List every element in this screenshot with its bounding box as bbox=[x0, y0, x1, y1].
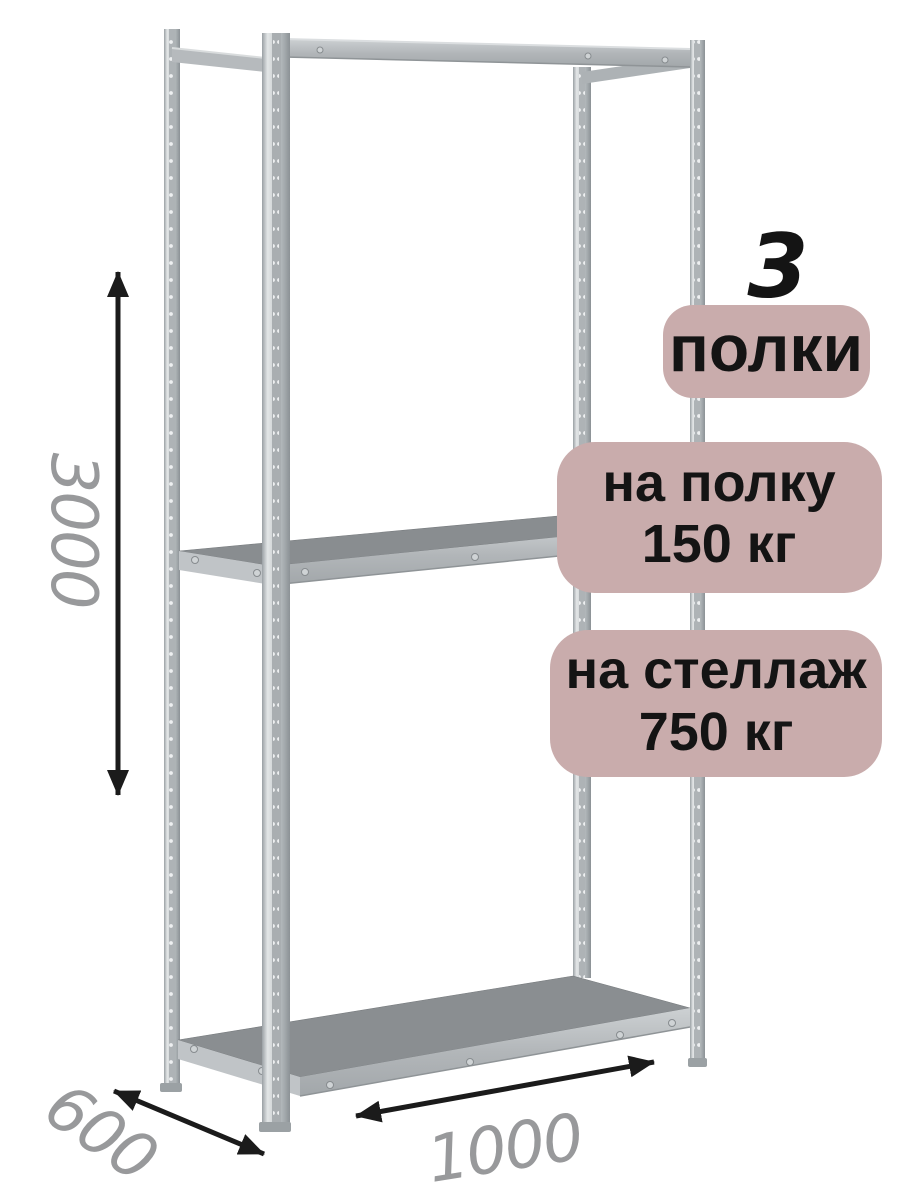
shelf-count-number: 3 bbox=[747, 215, 808, 318]
rack-load-line2: 750 кг bbox=[639, 702, 794, 762]
rack-shelf-bottom bbox=[178, 976, 690, 1096]
shelf-count-label: полки bbox=[669, 311, 863, 385]
rack-load-badge: на стеллаж 750 кг bbox=[550, 630, 882, 777]
height-dimension-label: 3000 bbox=[36, 453, 110, 608]
product-image: 3000 600 1000 3 полки на полку 150 кг на… bbox=[0, 0, 900, 1200]
rack-post-front-left bbox=[259, 33, 291, 1132]
rack-foot-back-left bbox=[160, 1083, 182, 1092]
shelf-load-line2: 150 кг bbox=[642, 514, 797, 574]
rack-post-back-left bbox=[164, 29, 180, 1085]
rack-load-line1: на стеллаж bbox=[565, 640, 867, 700]
rack-dimension-diagram: 3000 600 1000 3 полки на полку 150 кг на… bbox=[0, 0, 900, 1200]
rack-shelf-top bbox=[172, 39, 690, 84]
shelf-load-badge: на полку 150 кг bbox=[557, 442, 882, 593]
shelf-count-badge: полки bbox=[663, 305, 870, 398]
depth-dimension-label: 600 bbox=[31, 1069, 169, 1196]
width-dimension-label: 1000 bbox=[422, 1101, 587, 1198]
shelf-load-line1: на полку bbox=[602, 453, 835, 513]
